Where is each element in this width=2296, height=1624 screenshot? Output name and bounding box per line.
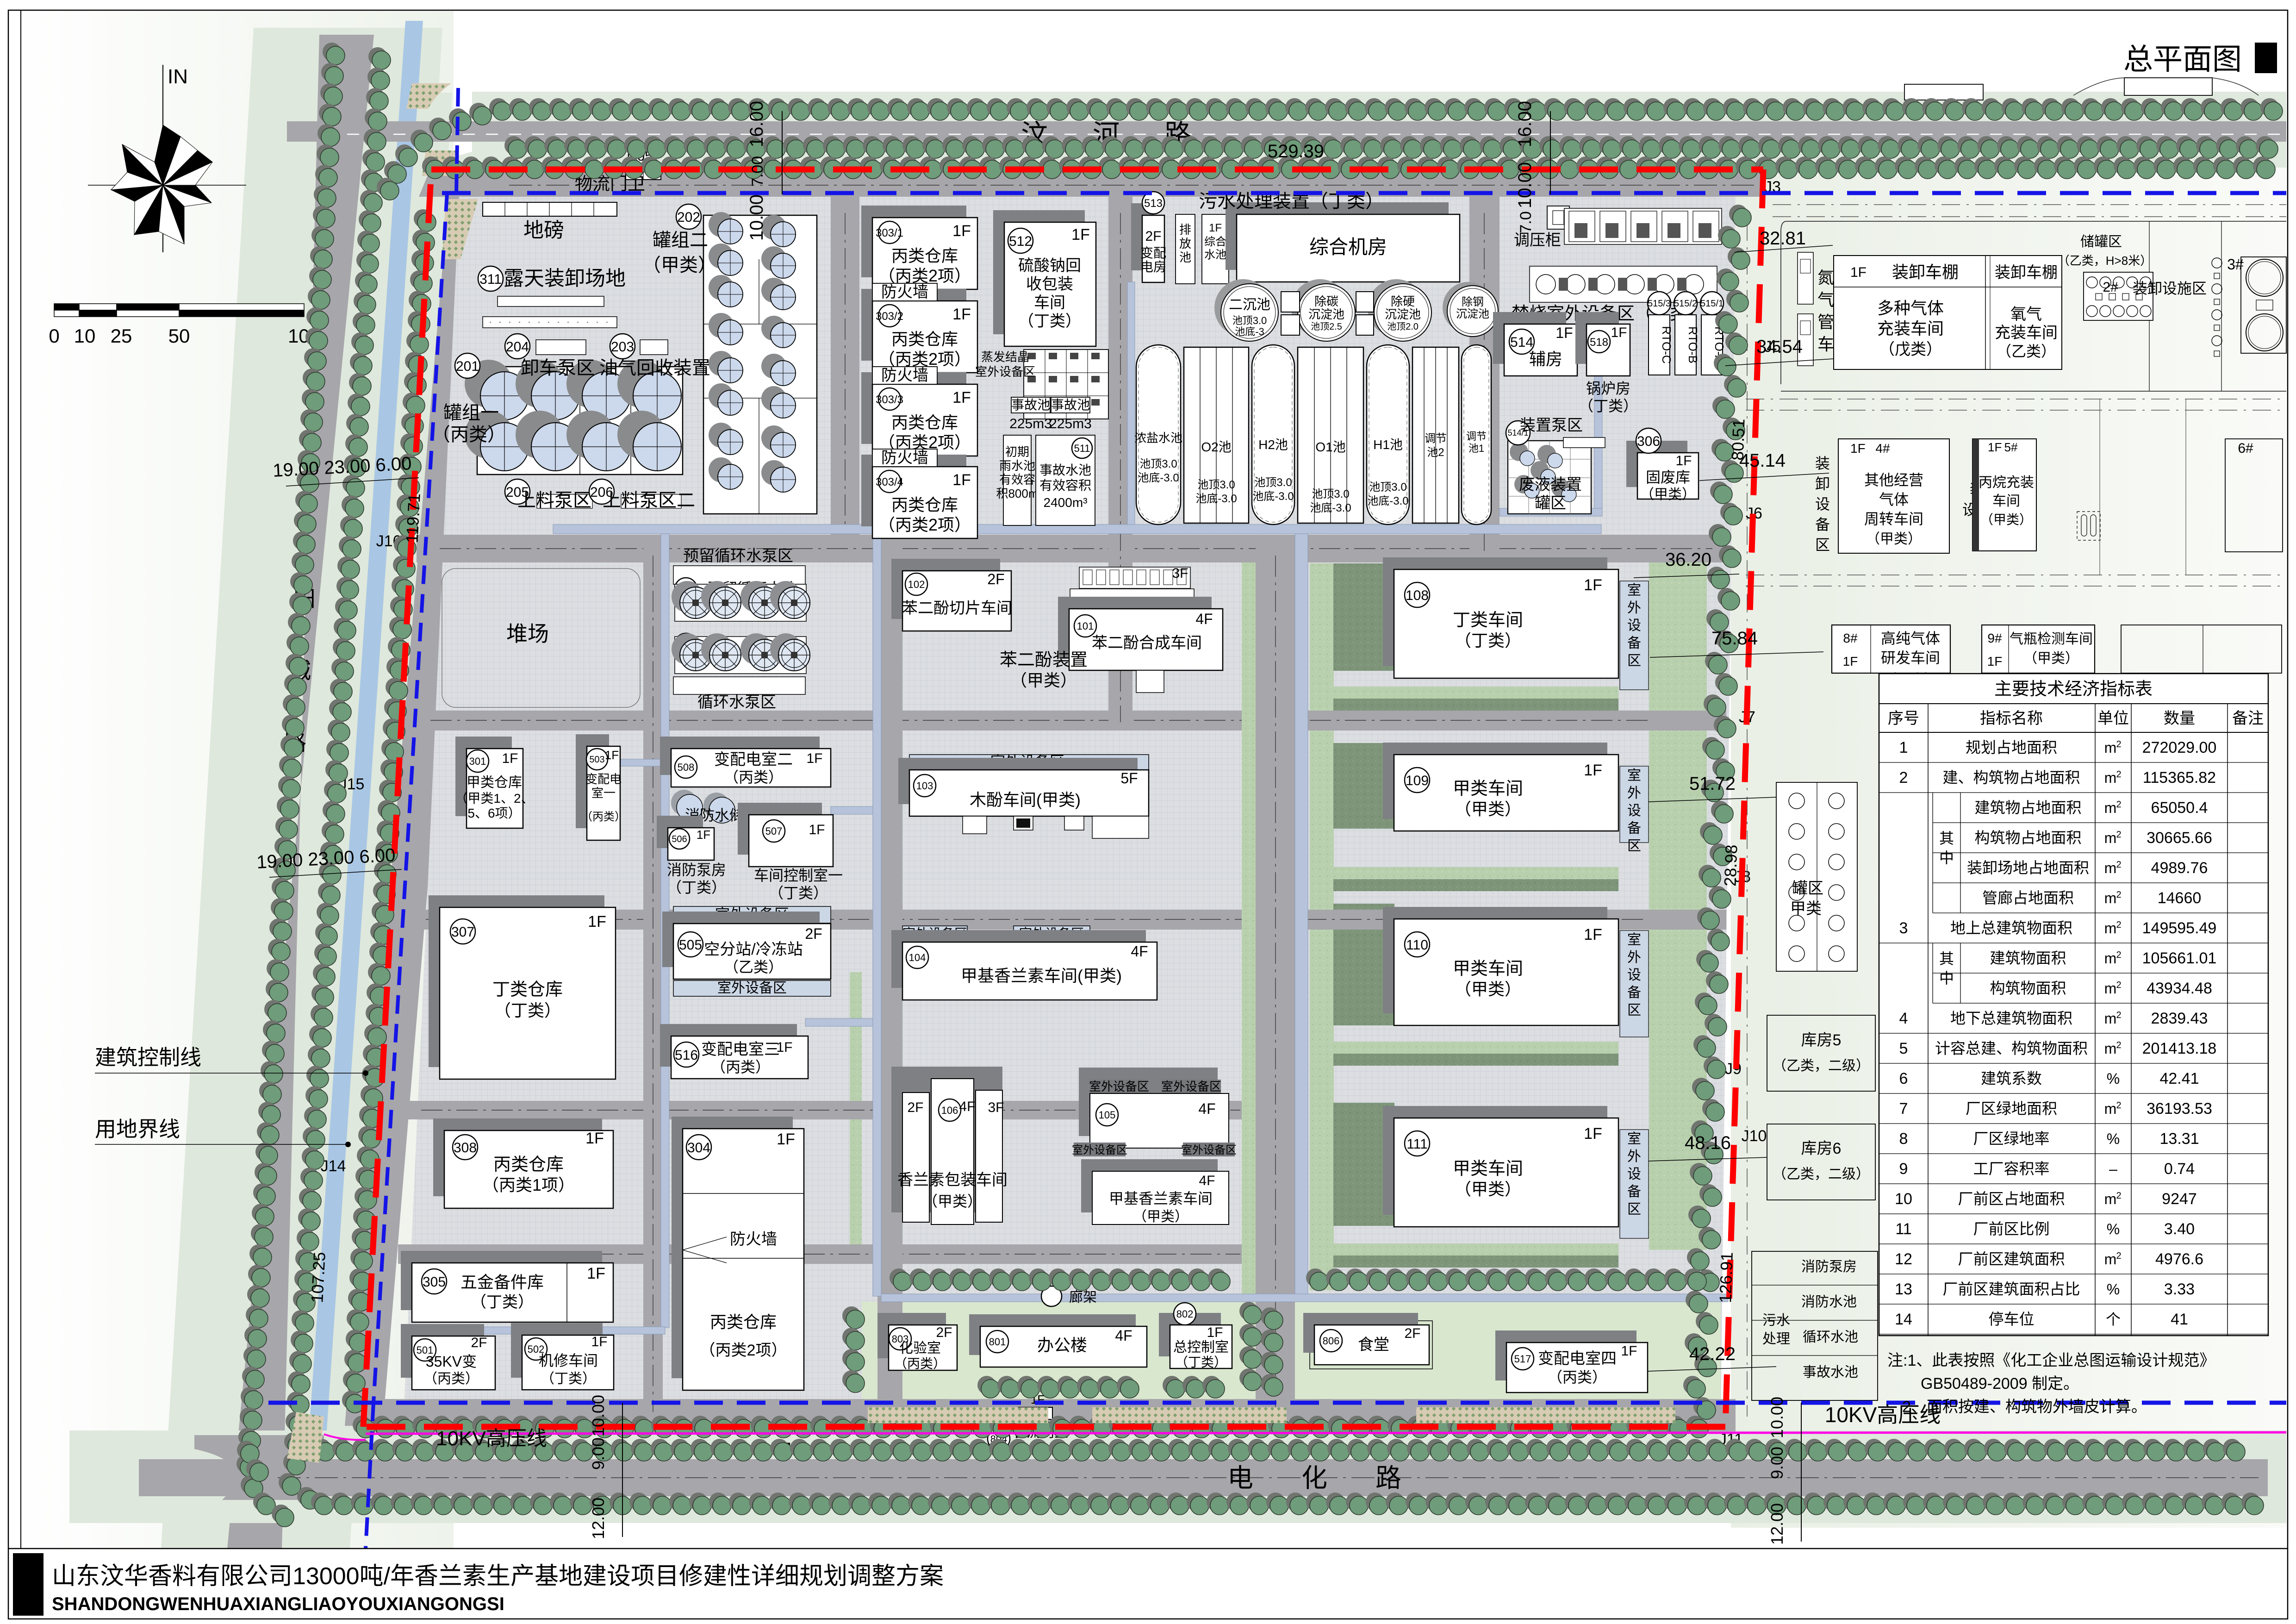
svg-text:126.91: 126.91	[1716, 1252, 1736, 1303]
svg-text:备: 备	[1627, 821, 1641, 836]
svg-text:地磅: 地磅	[523, 219, 564, 242]
svg-text:其: 其	[1939, 830, 1954, 847]
svg-text:4: 4	[1899, 1010, 1908, 1027]
svg-text:总控制室: 总控制室	[1173, 1340, 1229, 1355]
svg-text:废液装置: 废液装置	[1519, 476, 1582, 493]
svg-text:2: 2	[2116, 860, 2121, 870]
svg-text:508: 508	[678, 762, 695, 773]
svg-text:RTO-B: RTO-B	[1686, 326, 1700, 363]
svg-text:7.00: 7.00	[749, 156, 766, 187]
svg-text:充装车间: 充装车间	[1877, 319, 1944, 338]
svg-text:42.41: 42.41	[2159, 1070, 2199, 1087]
svg-text:室外设备区: 室外设备区	[717, 981, 787, 996]
svg-text:（丁类）: （丁类）	[1455, 631, 1521, 650]
svg-text:（乙类，H>8米）: （乙类，H>8米）	[2058, 254, 2152, 268]
svg-text:罐区: 罐区	[1535, 494, 1566, 512]
svg-text:氧气: 氧气	[2010, 306, 2042, 323]
svg-text:2、面积按建、构筑物外墙皮计算。: 2、面积按建、构筑物外墙皮计算。	[1902, 1398, 2147, 1416]
svg-text:中: 中	[1939, 849, 1954, 866]
svg-text:16.00: 16.00	[747, 101, 767, 147]
svg-text:307: 307	[451, 924, 474, 940]
svg-text:2: 2	[1899, 769, 1908, 787]
svg-text:车: 车	[1817, 335, 1834, 354]
svg-text:（丁类）: （丁类）	[667, 879, 726, 896]
svg-text:9.00: 9.00	[589, 1437, 608, 1470]
svg-text:%: %	[2107, 1131, 2120, 1147]
svg-text:225m3: 225m3	[1009, 416, 1052, 431]
svg-text:防火墙: 防火墙	[881, 367, 928, 384]
svg-text:主要技术经济指标表: 主要技术经济指标表	[1994, 680, 2153, 699]
svg-text:事故池: 事故池	[1051, 398, 1090, 412]
svg-text:O1池: O1池	[1315, 440, 1345, 454]
svg-text:数量: 数量	[2164, 710, 2195, 727]
svg-text:厂区绿地面积: 厂区绿地面积	[1966, 1100, 2057, 1117]
svg-text:1F: 1F	[591, 1334, 607, 1349]
svg-text:2839.43: 2839.43	[2151, 1010, 2208, 1027]
svg-text:调节: 调节	[1425, 432, 1447, 445]
svg-text:2: 2	[2116, 800, 2121, 810]
svg-text:507: 507	[765, 825, 783, 837]
svg-text:2: 2	[2116, 980, 2121, 990]
svg-text:103: 103	[916, 780, 933, 792]
svg-text:化验室: 化验室	[899, 1341, 941, 1356]
svg-text:105: 105	[1099, 1109, 1116, 1121]
svg-text:（丙类）: （丙类）	[711, 1059, 770, 1075]
svg-text:305: 305	[423, 1274, 446, 1290]
svg-text:514: 514	[1510, 335, 1533, 350]
svg-text:10.00: 10.00	[1515, 162, 1535, 208]
svg-text:301: 301	[469, 756, 486, 767]
svg-text:外: 外	[1627, 950, 1641, 965]
svg-text:（丁类）: （丁类）	[1175, 1355, 1227, 1369]
svg-text:有效容积: 有效容积	[1039, 478, 1091, 493]
svg-text:1F: 1F	[1611, 325, 1627, 340]
svg-text:装置泵区: 装置泵区	[1520, 417, 1583, 434]
svg-text:设: 设	[1627, 618, 1641, 633]
svg-text:（甲类）: （甲类）	[642, 255, 716, 275]
svg-text:循环水池: 循环水池	[1803, 1330, 1858, 1345]
svg-text:锅炉房: 锅炉房	[1586, 380, 1630, 397]
svg-text:1F: 1F	[1621, 1343, 1637, 1359]
svg-text:计容总建、构筑物面积: 计容总建、构筑物面积	[1935, 1040, 2088, 1057]
svg-text:研发车间: 研发车间	[1881, 650, 1940, 666]
svg-text:517: 517	[1514, 1353, 1531, 1365]
svg-text:除碳: 除碳	[1314, 294, 1338, 308]
svg-text:处理: 处理	[1762, 1331, 1790, 1347]
svg-text:池底-3.0: 池底-3.0	[1252, 490, 1294, 503]
svg-text:106: 106	[941, 1105, 958, 1116]
svg-text:收包装: 收包装	[1026, 275, 1073, 293]
svg-text:1F: 1F	[777, 1131, 795, 1148]
svg-text:变配电室三: 变配电室三	[701, 1041, 780, 1058]
svg-text:2#: 2#	[2103, 280, 2118, 295]
svg-text:43934.48: 43934.48	[2147, 980, 2212, 997]
svg-text:（乙类，二级）: （乙类，二级）	[1773, 1058, 1870, 1074]
svg-text:罐组一: 罐组一	[443, 403, 499, 423]
svg-text:110: 110	[1406, 937, 1428, 953]
svg-text:池底-3: 池底-3	[1235, 326, 1264, 337]
svg-text:529.39: 529.39	[1268, 141, 1324, 162]
svg-text:池: 池	[1179, 250, 1191, 264]
svg-text:H2池: H2池	[1258, 437, 1288, 452]
svg-text:库房5: 库房5	[1801, 1031, 1842, 1049]
svg-text:4F: 4F	[1198, 1100, 1215, 1117]
svg-text:甲类: 甲类	[1790, 900, 1822, 918]
svg-text:室: 室	[1627, 583, 1641, 598]
svg-text:2F: 2F	[1145, 229, 1161, 244]
svg-text:车间: 车间	[1992, 493, 2020, 509]
svg-text:池底-3.0: 池底-3.0	[1138, 472, 1179, 484]
svg-text:102: 102	[908, 579, 925, 590]
svg-text:4F: 4F	[1199, 1173, 1215, 1188]
svg-text:1F: 1F	[952, 471, 971, 489]
svg-text:设: 设	[1815, 496, 1830, 512]
svg-text:105661.01: 105661.01	[2142, 949, 2217, 967]
svg-text:预留循环水泵区: 预留循环水泵区	[683, 547, 793, 565]
svg-text:除钢: 除钢	[1462, 296, 1484, 308]
svg-text:2400m³: 2400m³	[1044, 495, 1088, 510]
svg-text:3.40: 3.40	[2164, 1220, 2195, 1238]
svg-text:（丙类）: （丙类）	[432, 425, 506, 445]
svg-text:丙类仓库: 丙类仓库	[710, 1312, 777, 1331]
svg-text:沉淀池: 沉淀池	[1456, 308, 1489, 320]
svg-text:室外设备区: 室外设备区	[1161, 1080, 1221, 1093]
svg-text:机修车间: 机修车间	[539, 1352, 598, 1369]
svg-text:多种气体: 多种气体	[1877, 299, 1944, 318]
svg-text:2F: 2F	[987, 571, 1004, 587]
svg-text:变配电室二: 变配电室二	[714, 751, 793, 768]
svg-text:序号: 序号	[1888, 710, 1919, 727]
svg-text:311: 311	[479, 272, 502, 287]
svg-text:（丙类）: （丙类）	[423, 1371, 479, 1387]
svg-text:氮: 氮	[1817, 268, 1834, 287]
svg-text:池底-3.0: 池底-3.0	[1195, 493, 1237, 505]
svg-text:7.0: 7.0	[1517, 211, 1535, 233]
svg-text:149595.49: 149595.49	[2142, 919, 2217, 937]
svg-text:2: 2	[2116, 769, 2121, 780]
svg-text:电: 电	[1227, 1463, 1253, 1493]
svg-text:m: m	[2104, 920, 2117, 937]
svg-text:辅房: 辅房	[1529, 350, 1562, 369]
svg-text:m: m	[2104, 830, 2117, 846]
svg-text:3#: 3#	[2227, 256, 2244, 273]
svg-text:801: 801	[989, 1336, 1006, 1348]
svg-text:503: 503	[589, 755, 604, 765]
svg-text:m: m	[2104, 950, 2117, 967]
svg-text:综合机房: 综合机房	[1309, 236, 1387, 258]
svg-text:化: 化	[1301, 1463, 1327, 1493]
svg-text:厂区绿地率: 厂区绿地率	[1973, 1130, 2050, 1147]
svg-text:丁类车间: 丁类车间	[1453, 611, 1523, 630]
svg-text:二沉池: 二沉池	[1229, 297, 1270, 312]
svg-text:J10: J10	[1742, 1127, 1767, 1145]
svg-text:沉淀池: 沉淀池	[1385, 307, 1421, 321]
svg-text:消防泵房: 消防泵房	[667, 862, 726, 878]
svg-text:厂前区占地面积: 厂前区占地面积	[1958, 1190, 2065, 1207]
svg-text:中: 中	[1939, 970, 1954, 987]
svg-text:车间: 车间	[1034, 294, 1065, 312]
svg-text:1F: 1F	[605, 748, 619, 762]
svg-text:防火墙: 防火墙	[881, 283, 928, 301]
svg-text:%: %	[2107, 1281, 2120, 1298]
svg-text:丙烷充装: 丙烷充装	[1979, 475, 2034, 490]
svg-text:电房: 电房	[1140, 260, 1166, 274]
svg-text:厂前区比例: 厂前区比例	[1973, 1220, 2050, 1237]
svg-text:10: 10	[1895, 1190, 1912, 1208]
svg-text:m: m	[2104, 800, 2117, 816]
svg-text:甲类仓库: 甲类仓库	[467, 775, 522, 790]
svg-text:丙类仓库: 丙类仓库	[891, 330, 958, 349]
svg-text:空分站/冷冻站: 空分站/冷冻站	[704, 941, 803, 958]
svg-text:消防泵房: 消防泵房	[1801, 1259, 1857, 1274]
svg-text:水池: 水池	[1204, 249, 1226, 261]
svg-text:（甲类）: （甲类）	[923, 1193, 982, 1210]
svg-text:厂前区建筑面积: 厂前区建筑面积	[1958, 1250, 2065, 1268]
svg-text:区: 区	[1627, 653, 1641, 668]
svg-text:2: 2	[2116, 1100, 2121, 1111]
svg-text:111: 111	[1406, 1137, 1428, 1152]
svg-text:14660: 14660	[2158, 889, 2202, 907]
svg-text:GB50489-2009 制定。: GB50489-2009 制定。	[1921, 1375, 2079, 1393]
svg-text:518: 518	[1590, 336, 1608, 349]
svg-text:0.74: 0.74	[2164, 1160, 2195, 1178]
svg-text:（甲类）: （甲类）	[1455, 980, 1521, 999]
svg-text:2: 2	[2116, 1040, 2121, 1050]
svg-text:设: 设	[1627, 803, 1641, 818]
svg-text:（甲类）: （甲类）	[1010, 671, 1077, 690]
svg-text:变配电室四: 变配电室四	[1538, 1350, 1617, 1368]
svg-text:4#: 4#	[1875, 441, 1890, 456]
svg-text:建筑物占地面积: 建筑物占地面积	[1975, 799, 2082, 816]
svg-text:外: 外	[1627, 600, 1641, 616]
svg-text:IN: IN	[168, 65, 188, 88]
svg-text:2F: 2F	[907, 1100, 923, 1115]
svg-text:车间控制室一: 车间控制室一	[754, 867, 843, 884]
svg-text:气: 气	[1817, 290, 1834, 309]
svg-text:池顶3.0: 池顶3.0	[1197, 479, 1235, 491]
svg-text:调节: 调节	[1466, 431, 1487, 442]
svg-text:m: m	[2104, 980, 2117, 997]
svg-text:区: 区	[1627, 838, 1641, 854]
svg-text:（戊类）: （戊类）	[1879, 341, 1942, 358]
svg-text:有效容: 有效容	[999, 473, 1035, 487]
svg-text:罐组二: 罐组二	[653, 230, 708, 250]
svg-text:3F: 3F	[988, 1100, 1004, 1115]
svg-text:1F: 1F	[1209, 222, 1222, 234]
svg-text:1F: 1F	[1584, 926, 1602, 943]
svg-text:SHANDONGWENHUAXIANGLIAOYOUXIAN: SHANDONGWENHUAXIANGLIAOYOUXIANGONGSI	[52, 1594, 504, 1614]
svg-text:（丁类）: （丁类）	[471, 1293, 534, 1311]
svg-text:蒸发结晶: 蒸发结晶	[981, 350, 1029, 364]
svg-text:外: 外	[1627, 1149, 1641, 1164]
svg-text:消防水池: 消防水池	[1801, 1294, 1857, 1310]
svg-text:308: 308	[454, 1140, 477, 1156]
svg-text:2F: 2F	[471, 1335, 487, 1350]
svg-text:4F: 4F	[1195, 611, 1213, 627]
svg-text:2F: 2F	[805, 925, 822, 942]
svg-text:9: 9	[1899, 1160, 1908, 1178]
svg-text:1F: 1F	[1584, 1125, 1602, 1143]
svg-text:（丙类2项）: （丙类2项）	[878, 350, 971, 369]
svg-text:建筑控制线: 建筑控制线	[95, 1045, 201, 1069]
svg-text:油气回收装置: 油气回收装置	[599, 358, 710, 378]
svg-text:室外设备区: 室外设备区	[1181, 1144, 1237, 1156]
svg-text:防火墙: 防火墙	[881, 449, 928, 467]
svg-text:36.20: 36.20	[1665, 550, 1711, 570]
svg-text:其: 其	[1939, 950, 1954, 967]
svg-text:1F: 1F	[1584, 762, 1602, 779]
svg-text:m: m	[2104, 1040, 2117, 1057]
svg-text:其他经营: 其他经营	[1864, 472, 1923, 488]
svg-text:35KV变: 35KV变	[426, 1353, 477, 1370]
svg-text:303/1: 303/1	[876, 227, 903, 239]
svg-text:总平面图: 总平面图	[2123, 43, 2242, 76]
svg-text:203: 203	[611, 339, 634, 355]
svg-text:2F: 2F	[936, 1325, 952, 1340]
svg-text:循环水泵区: 循环水泵区	[697, 693, 776, 711]
svg-text:甲类车间: 甲类车间	[1453, 1159, 1523, 1179]
svg-text:（甲类）: （甲类）	[1866, 531, 1922, 547]
svg-text:2: 2	[2116, 739, 2121, 750]
svg-text:变配: 变配	[1140, 246, 1166, 260]
svg-text:周转车间: 周转车间	[1864, 511, 1923, 527]
svg-text:1F: 1F	[952, 389, 971, 406]
svg-text:303/2: 303/2	[876, 310, 903, 323]
svg-text:4F: 4F	[959, 1099, 975, 1114]
svg-text:管: 管	[1817, 312, 1834, 331]
svg-text:固废库: 固废库	[1646, 469, 1690, 486]
svg-text:1F: 1F	[1843, 654, 1858, 668]
svg-text:RTO-C: RTO-C	[1660, 326, 1674, 363]
svg-text:外: 外	[1627, 786, 1641, 801]
svg-text:5#: 5#	[2004, 440, 2018, 454]
svg-text:个: 个	[2106, 1311, 2121, 1328]
svg-text:硫酸钠回: 硫酸钠回	[1018, 257, 1081, 275]
svg-text:区: 区	[1627, 1003, 1641, 1018]
svg-text:515/3: 515/3	[1648, 299, 1671, 309]
svg-text:14: 14	[1895, 1311, 1912, 1328]
svg-text:（丙类）: （丙类）	[724, 769, 783, 786]
svg-text:（丙类1项）: （丙类1项）	[482, 1175, 575, 1194]
svg-text:1F: 1F	[952, 222, 971, 240]
svg-text:515/2: 515/2	[1674, 299, 1697, 309]
svg-text:12.00: 12.00	[1767, 1503, 1786, 1545]
svg-text:山东汶华香料有限公司13000吨/年香兰素生产基地建设项目修: 山东汶华香料有限公司13000吨/年香兰素生产基地建设项目修建性详细规划调整方案	[52, 1563, 944, 1590]
svg-text:32.81: 32.81	[1760, 228, 1806, 249]
svg-text:（乙类）: （乙类）	[1997, 343, 2056, 360]
svg-text:（丁类）: （丁类）	[541, 1371, 596, 1387]
svg-text:8#: 8#	[1843, 631, 1858, 645]
svg-text:12.00: 12.00	[589, 1498, 608, 1539]
svg-text:34.54: 34.54	[1756, 337, 1803, 357]
svg-text:1F: 1F	[1988, 440, 2002, 454]
svg-text:排: 排	[1179, 223, 1191, 237]
svg-text:事故水池: 事故水池	[1039, 463, 1091, 477]
svg-text:m: m	[2104, 890, 2117, 906]
svg-text:6: 6	[1899, 1070, 1908, 1087]
svg-text:51.72: 51.72	[1689, 774, 1736, 794]
svg-text:装卸场地占地面积: 装卸场地占地面积	[1967, 859, 2089, 876]
svg-text:（丁类）: （丁类）	[1018, 312, 1081, 330]
svg-text:104: 104	[909, 952, 926, 963]
svg-text:16.00: 16.00	[1515, 101, 1535, 147]
svg-text:装: 装	[1815, 455, 1830, 472]
svg-text:卸: 卸	[1815, 475, 1830, 492]
svg-text:室: 室	[1627, 932, 1641, 948]
svg-text:池顶2.0: 池顶2.0	[1387, 321, 1419, 332]
svg-text:雨水池: 雨水池	[999, 459, 1035, 473]
svg-text:10KV高压线: 10KV高压线	[436, 1427, 547, 1450]
svg-text:4F: 4F	[1115, 1327, 1132, 1344]
svg-text:（丁类）: （丁类）	[769, 885, 828, 901]
svg-text:1F: 1F	[588, 913, 606, 931]
svg-text:201413.18: 201413.18	[2142, 1040, 2217, 1057]
svg-text:备: 备	[1627, 636, 1641, 651]
svg-text:1F: 1F	[1850, 441, 1866, 456]
svg-text:28.98: 28.98	[1720, 844, 1741, 887]
svg-text:4F: 4F	[1131, 943, 1148, 960]
svg-text:O2池: O2池	[1201, 440, 1231, 454]
svg-text:2: 2	[2116, 950, 2121, 960]
svg-text:丙类仓库: 丙类仓库	[493, 1155, 564, 1174]
svg-text:272029.00: 272029.00	[2142, 739, 2217, 756]
svg-text:充装车间: 充装车间	[1995, 324, 2058, 342]
svg-text:路: 路	[1375, 1463, 1401, 1493]
svg-text:1F: 1F	[1556, 325, 1573, 341]
svg-text:13: 13	[1895, 1280, 1912, 1298]
svg-text:7: 7	[1899, 1100, 1908, 1118]
svg-text:（甲类）: （甲类）	[1455, 1180, 1521, 1199]
svg-text:（甲类）: （甲类）	[1640, 487, 1696, 502]
svg-text:J14: J14	[321, 1157, 346, 1175]
svg-text:池顶2.5: 池顶2.5	[1311, 321, 1342, 332]
svg-text:109: 109	[1406, 773, 1429, 788]
svg-text:30665.66: 30665.66	[2147, 829, 2212, 847]
svg-text:气瓶检测车间: 气瓶检测车间	[2010, 631, 2093, 647]
svg-text:5: 5	[1899, 1040, 1908, 1057]
svg-text:516: 516	[675, 1048, 698, 1063]
svg-text:1F: 1F	[1850, 265, 1867, 280]
svg-text:池顶3.0: 池顶3.0	[1232, 315, 1267, 326]
svg-text:室: 室	[1627, 1131, 1641, 1147]
svg-text:505: 505	[679, 937, 702, 953]
svg-text:25: 25	[111, 325, 132, 347]
svg-text:食堂: 食堂	[1358, 1336, 1389, 1354]
svg-text:池2: 池2	[1427, 446, 1444, 459]
svg-text:8: 8	[1899, 1130, 1908, 1148]
svg-text:48.16: 48.16	[1685, 1133, 1731, 1153]
svg-text:调压柜: 调压柜	[1514, 231, 1561, 249]
svg-text:511: 511	[1074, 443, 1090, 454]
svg-text:202: 202	[677, 210, 700, 225]
svg-text:0: 0	[49, 325, 59, 347]
svg-text:（甲类1、2、: （甲类1、2、	[454, 791, 534, 806]
svg-text:119.71: 119.71	[402, 493, 424, 543]
svg-text:廊架: 廊架	[1069, 1290, 1097, 1305]
svg-text:3.33: 3.33	[2164, 1280, 2195, 1298]
svg-text:101: 101	[1077, 620, 1094, 632]
svg-text:工厂容积率: 工厂容积率	[1973, 1160, 2050, 1177]
svg-text:池顶3.0: 池顶3.0	[1254, 476, 1292, 489]
svg-text:1F: 1F	[502, 751, 518, 766]
svg-text:储罐区: 储罐区	[2080, 234, 2122, 250]
svg-text:香兰素包装车间: 香兰素包装车间	[897, 1171, 1008, 1189]
svg-text:1F: 1F	[585, 1130, 604, 1147]
svg-text:苯二酚装置: 苯二酚装置	[1000, 650, 1088, 670]
svg-text:512: 512	[1009, 234, 1032, 249]
svg-text:（甲类）: （甲类）	[1980, 512, 2032, 527]
svg-text:气体: 气体	[1879, 491, 1909, 508]
